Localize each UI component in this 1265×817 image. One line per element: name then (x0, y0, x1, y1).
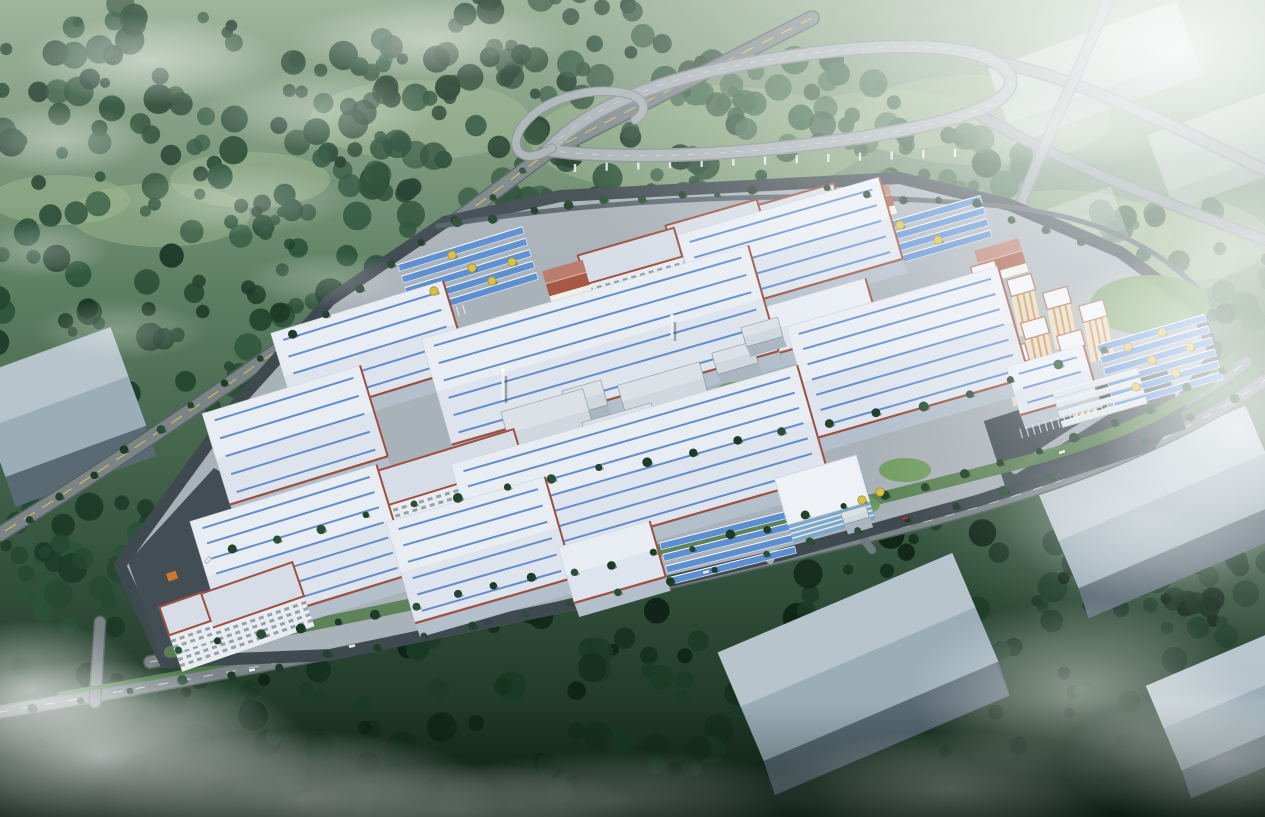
aerial-scene (0, 0, 1265, 817)
atmosphere-layer (0, 0, 1265, 817)
aerial-rendering-stage (0, 0, 1265, 817)
bottom-vignette (0, 0, 1265, 817)
